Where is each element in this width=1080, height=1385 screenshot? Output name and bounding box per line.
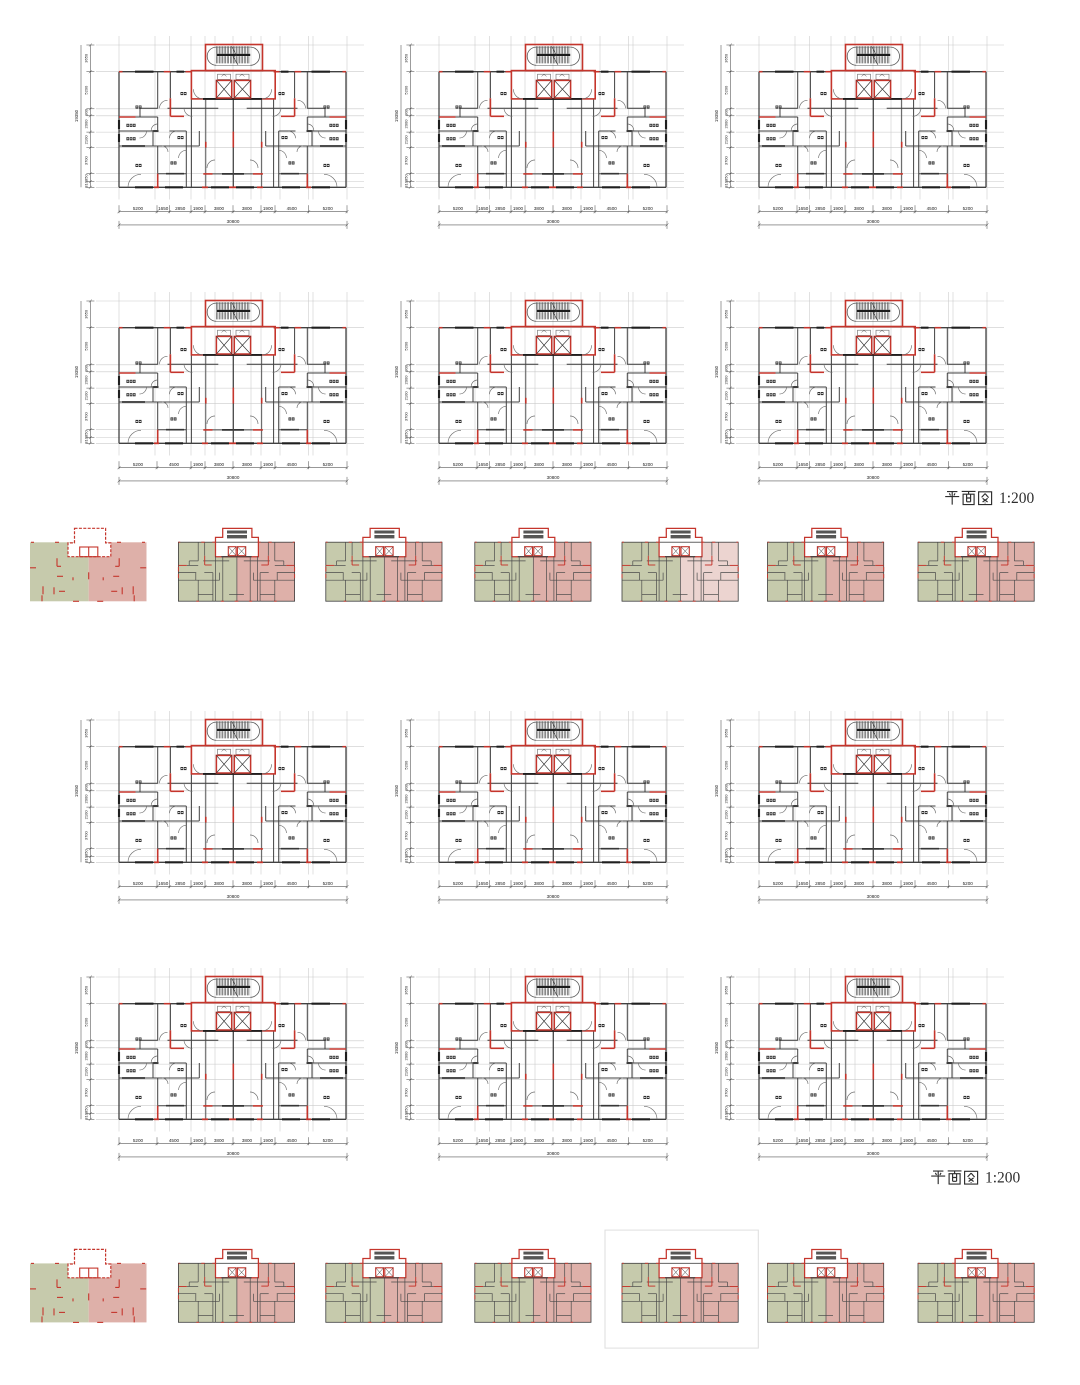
svg-text:1:200: 1:200 — [985, 1170, 1021, 1187]
svg-text:1:200: 1:200 — [999, 490, 1035, 507]
